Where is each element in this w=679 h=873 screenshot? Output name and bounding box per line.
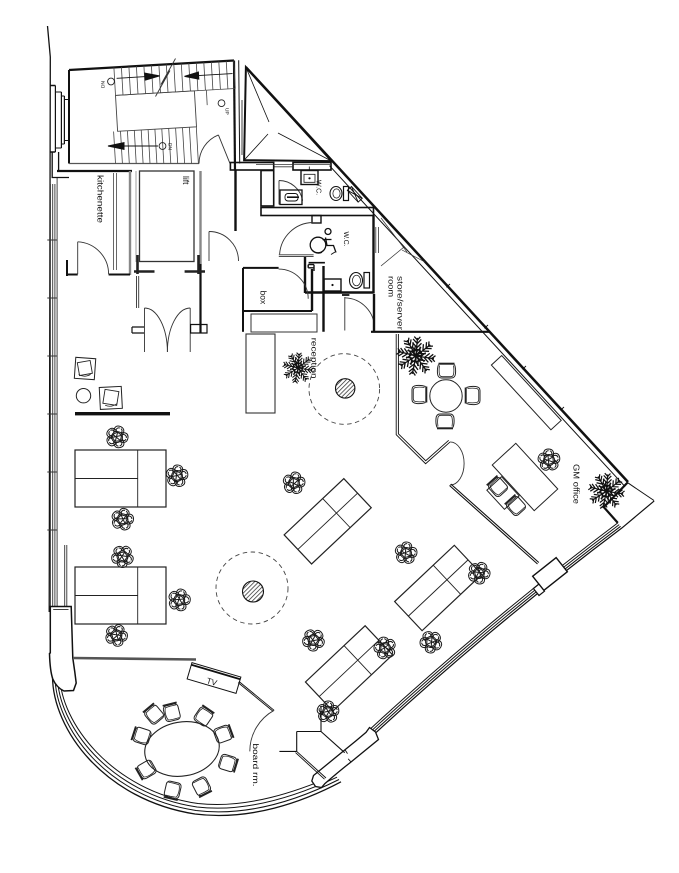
svg-text:kitchenette: kitchenette <box>95 175 105 223</box>
svg-text:board rm.: board rm. <box>251 744 260 787</box>
svg-text:DN: DN <box>101 81 107 88</box>
svg-text:lift: lift <box>181 176 191 185</box>
svg-text:W.C.: W.C. <box>315 180 322 195</box>
svg-text:DN: DN <box>167 143 173 150</box>
svg-text:UP: UP <box>224 108 230 115</box>
svg-text:room: room <box>387 276 396 297</box>
svg-text:box: box <box>259 291 269 305</box>
svg-text:reception: reception <box>309 338 318 379</box>
svg-text:store/server: store/server <box>396 276 405 330</box>
svg-text:W.C.: W.C. <box>342 232 349 247</box>
svg-text:GM office: GM office <box>572 464 582 504</box>
